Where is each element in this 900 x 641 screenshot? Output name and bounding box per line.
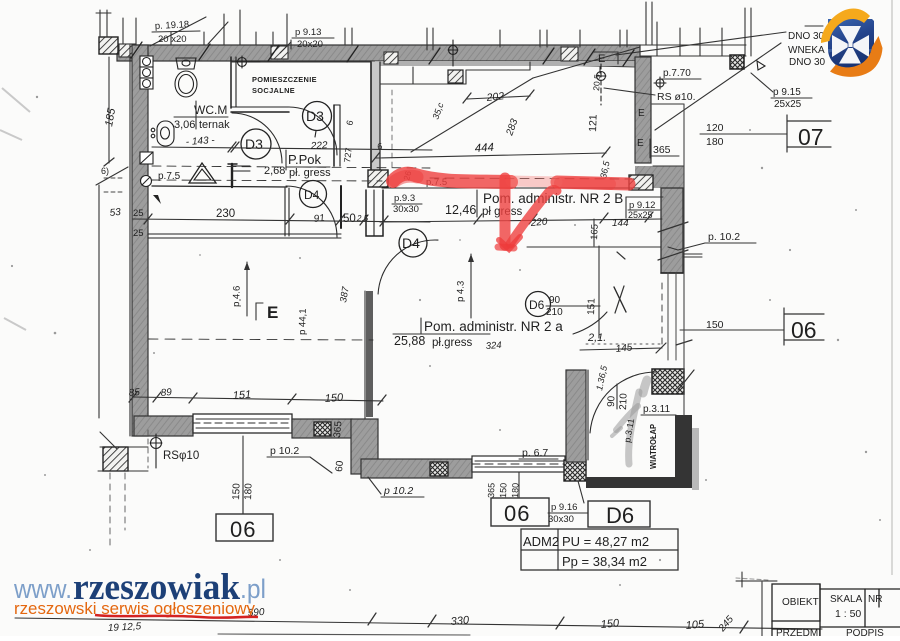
svg-text:p 4.3: p 4.3 <box>455 281 467 303</box>
svg-text:D6: D6 <box>606 503 634 528</box>
svg-text:SOCJALNE: SOCJALNE <box>252 86 295 95</box>
svg-text:90: 90 <box>549 295 561 306</box>
svg-text:20x20: 20x20 <box>297 39 323 50</box>
svg-text:50: 50 <box>343 213 356 225</box>
svg-text:D6: D6 <box>529 298 545 312</box>
svg-text:p. 19.18: p. 19.18 <box>155 19 190 32</box>
svg-text:25x25: 25x25 <box>628 210 653 220</box>
svg-text:p 10.2: p 10.2 <box>270 445 299 457</box>
svg-text:365: 365 <box>486 483 497 498</box>
svg-text:121: 121 <box>587 114 600 132</box>
svg-text:180: 180 <box>706 136 724 148</box>
svg-text:1 : 50: 1 : 50 <box>835 608 861 620</box>
svg-text:RSφ10: RSφ10 <box>163 450 199 462</box>
svg-text:3,06: 3,06 <box>174 119 195 131</box>
svg-text:222: 222 <box>310 140 329 152</box>
svg-text:230: 230 <box>216 208 235 220</box>
svg-text:p 9.15: p 9.15 <box>773 87 801 98</box>
svg-text:150: 150 <box>498 483 509 498</box>
svg-text:30x30: 30x30 <box>393 204 419 215</box>
svg-text:19 12,5: 19 12,5 <box>108 621 142 634</box>
svg-text:2,68: 2,68 <box>264 165 285 177</box>
svg-text:p 9.13: p 9.13 <box>295 27 321 38</box>
svg-text:p 4.6: p 4.6 <box>231 286 243 308</box>
svg-text:150: 150 <box>324 392 344 405</box>
svg-text:PRZEDMI: PRZEDMI <box>776 628 821 636</box>
svg-text:91: 91 <box>313 213 325 225</box>
svg-text:D4: D4 <box>304 188 320 202</box>
svg-text:165: 165 <box>589 224 601 240</box>
svg-text:330: 330 <box>450 614 470 628</box>
svg-text:144: 144 <box>612 218 629 229</box>
svg-text:pł. gress: pł. gress <box>289 167 331 179</box>
svg-text:WIATROŁAP: WIATROŁAP <box>648 424 658 469</box>
svg-text:E: E <box>637 138 644 149</box>
svg-text:OBIEKT: OBIEKT <box>782 597 819 608</box>
svg-text:ADM2: ADM2 <box>523 534 559 549</box>
svg-text:07: 07 <box>798 124 824 150</box>
svg-text:25x25: 25x25 <box>774 99 802 110</box>
svg-text:D3: D3 <box>306 108 324 124</box>
svg-text:ternak: ternak <box>199 119 230 131</box>
svg-text:105: 105 <box>685 618 705 632</box>
svg-text:P.Pok: P.Pok <box>288 152 322 167</box>
svg-text:06: 06 <box>504 501 530 526</box>
svg-text:DNO 30: DNO 30 <box>789 57 826 68</box>
svg-text:p.9.3: p.9.3 <box>394 193 415 204</box>
svg-text:89: 89 <box>160 387 172 399</box>
svg-text:p.7.70: p.7.70 <box>663 68 691 79</box>
svg-text:30x30: 30x30 <box>548 514 574 525</box>
svg-text:RS ø10.: RS ø10. <box>657 91 696 103</box>
svg-text:6): 6) <box>101 166 109 176</box>
svg-text:120: 120 <box>706 122 724 134</box>
svg-text:2,1.: 2,1. <box>587 332 606 344</box>
svg-text:210: 210 <box>618 393 630 410</box>
svg-text:Pp = 38,34 m2: Pp = 38,34 m2 <box>562 554 647 569</box>
svg-text:SKALA: SKALA <box>830 594 863 605</box>
svg-text:202: 202 <box>485 90 505 104</box>
svg-text:53: 53 <box>109 207 122 219</box>
svg-text:p. 6.7: p. 6.7 <box>522 447 548 459</box>
svg-text:PU = 48,27 m2: PU = 48,27 m2 <box>562 534 649 549</box>
svg-text:180: 180 <box>243 483 255 500</box>
svg-text:150: 150 <box>231 483 243 500</box>
svg-text:p.7.5: p.7.5 <box>158 171 181 182</box>
svg-text:25,88: 25,88 <box>394 334 425 348</box>
svg-text:p. 10.2: p. 10.2 <box>708 231 740 243</box>
svg-text:06: 06 <box>230 517 256 542</box>
svg-text:Pom. administr. NR 2 a: Pom. administr. NR 2 a <box>424 319 563 334</box>
svg-text:E: E <box>638 108 645 119</box>
svg-text:60: 60 <box>334 460 346 472</box>
svg-text:p 10.2: p 10.2 <box>383 485 413 497</box>
svg-text:WNEKA: WNEKA <box>788 45 825 56</box>
svg-text:25: 25 <box>133 208 144 219</box>
svg-text:20,5: 20,5 <box>591 74 602 92</box>
svg-text:DNO 30: DNO 30 <box>788 31 825 42</box>
svg-text:p 44,1: p 44,1 <box>297 308 309 335</box>
svg-text:PODPIS: PODPIS <box>846 628 884 636</box>
svg-text:pł.gress: pł.gress <box>432 337 473 349</box>
svg-text:324: 324 <box>485 340 502 352</box>
svg-text:p.3.11: p.3.11 <box>643 404 670 415</box>
svg-text:06: 06 <box>791 317 817 343</box>
svg-text:E: E <box>598 53 605 65</box>
svg-text:151: 151 <box>586 298 598 315</box>
svg-text:12,46: 12,46 <box>445 203 476 217</box>
svg-text:365: 365 <box>653 144 671 156</box>
svg-text:25: 25 <box>133 228 144 239</box>
svg-text:E: E <box>267 303 278 322</box>
svg-text:727: 727 <box>342 147 354 163</box>
svg-text:365: 365 <box>332 420 344 438</box>
svg-text:p 9.16: p 9.16 <box>551 502 577 513</box>
svg-text:D3: D3 <box>245 136 263 152</box>
svg-text:D4: D4 <box>402 235 420 251</box>
svg-text:WC.M: WC.M <box>194 103 227 117</box>
svg-text:150: 150 <box>706 319 724 331</box>
svg-text:151: 151 <box>232 389 251 402</box>
svg-text:POMIESZCZENIE: POMIESZCZENIE <box>252 75 317 84</box>
svg-text:444: 444 <box>474 142 494 155</box>
svg-text:85: 85 <box>128 387 140 399</box>
svg-text:NR: NR <box>868 594 882 605</box>
svg-text:2,5: 2,5 <box>356 214 369 223</box>
svg-text:90: 90 <box>606 395 617 407</box>
svg-text:210: 210 <box>546 307 563 318</box>
svg-text:- 143 -: - 143 - <box>185 135 215 148</box>
svg-text:150: 150 <box>600 617 620 631</box>
